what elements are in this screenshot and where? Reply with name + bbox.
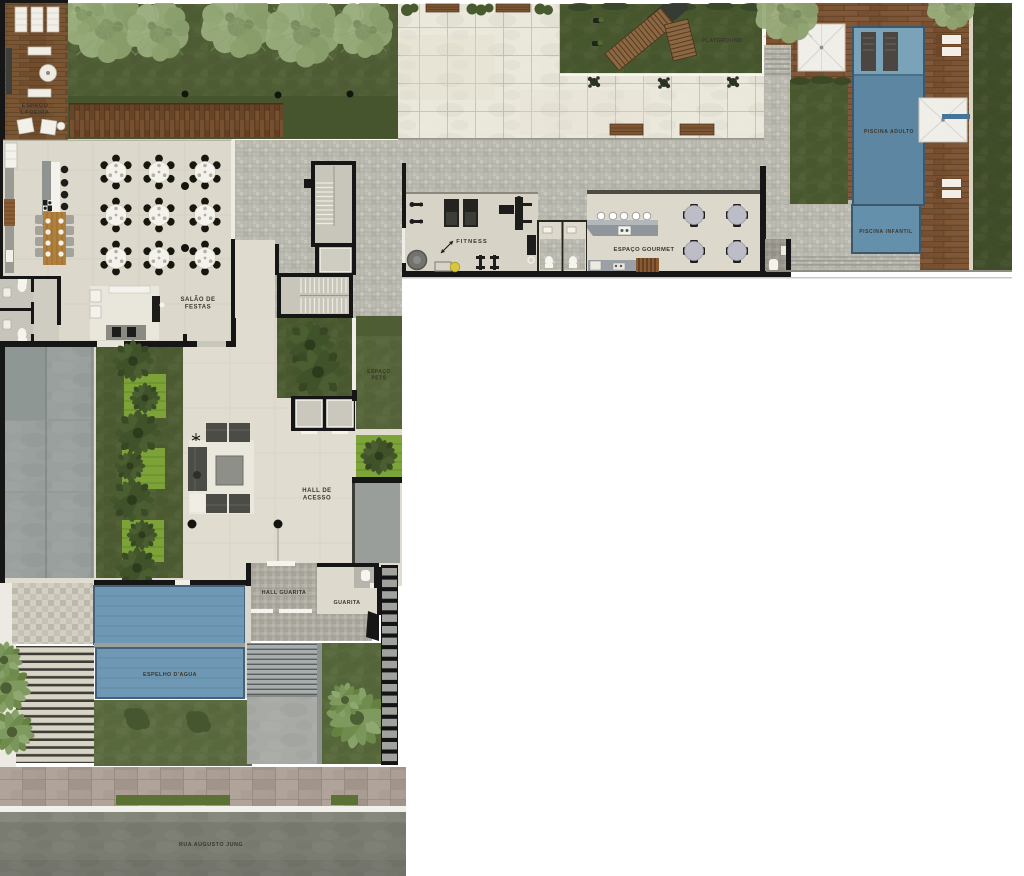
- svg-text:GUARITA: GUARITA: [334, 600, 361, 606]
- svg-text:ACESSO: ACESSO: [303, 496, 331, 502]
- svg-text:PLAYGROUND: PLAYGROUND: [702, 38, 742, 44]
- svg-text:HALL DE: HALL DE: [302, 488, 331, 494]
- svg-text:SALÃO DE: SALÃO DE: [180, 296, 215, 303]
- svg-text:ESPAÇO GOURMET: ESPAÇO GOURMET: [614, 247, 675, 253]
- svg-text:ESPAÇO: ESPAÇO: [367, 369, 391, 375]
- svg-text:PETS: PETS: [371, 376, 386, 382]
- svg-text:HALL GUARITA: HALL GUARITA: [262, 590, 307, 596]
- svg-text:LAREIRA: LAREIRA: [20, 110, 49, 116]
- svg-text:ESPELHO D'AGUA: ESPELHO D'AGUA: [143, 672, 197, 678]
- svg-text:RUA AUGUSTO JUNG: RUA AUGUSTO JUNG: [179, 842, 243, 848]
- svg-text:FITNESS: FITNESS: [456, 239, 487, 245]
- svg-text:FESTAS: FESTAS: [185, 305, 211, 311]
- svg-text:PISCINA ADULTO: PISCINA ADULTO: [864, 129, 914, 135]
- svg-text:ESPAÇO: ESPAÇO: [22, 103, 49, 109]
- svg-text:PISCINA INFANTIL: PISCINA INFANTIL: [859, 229, 913, 235]
